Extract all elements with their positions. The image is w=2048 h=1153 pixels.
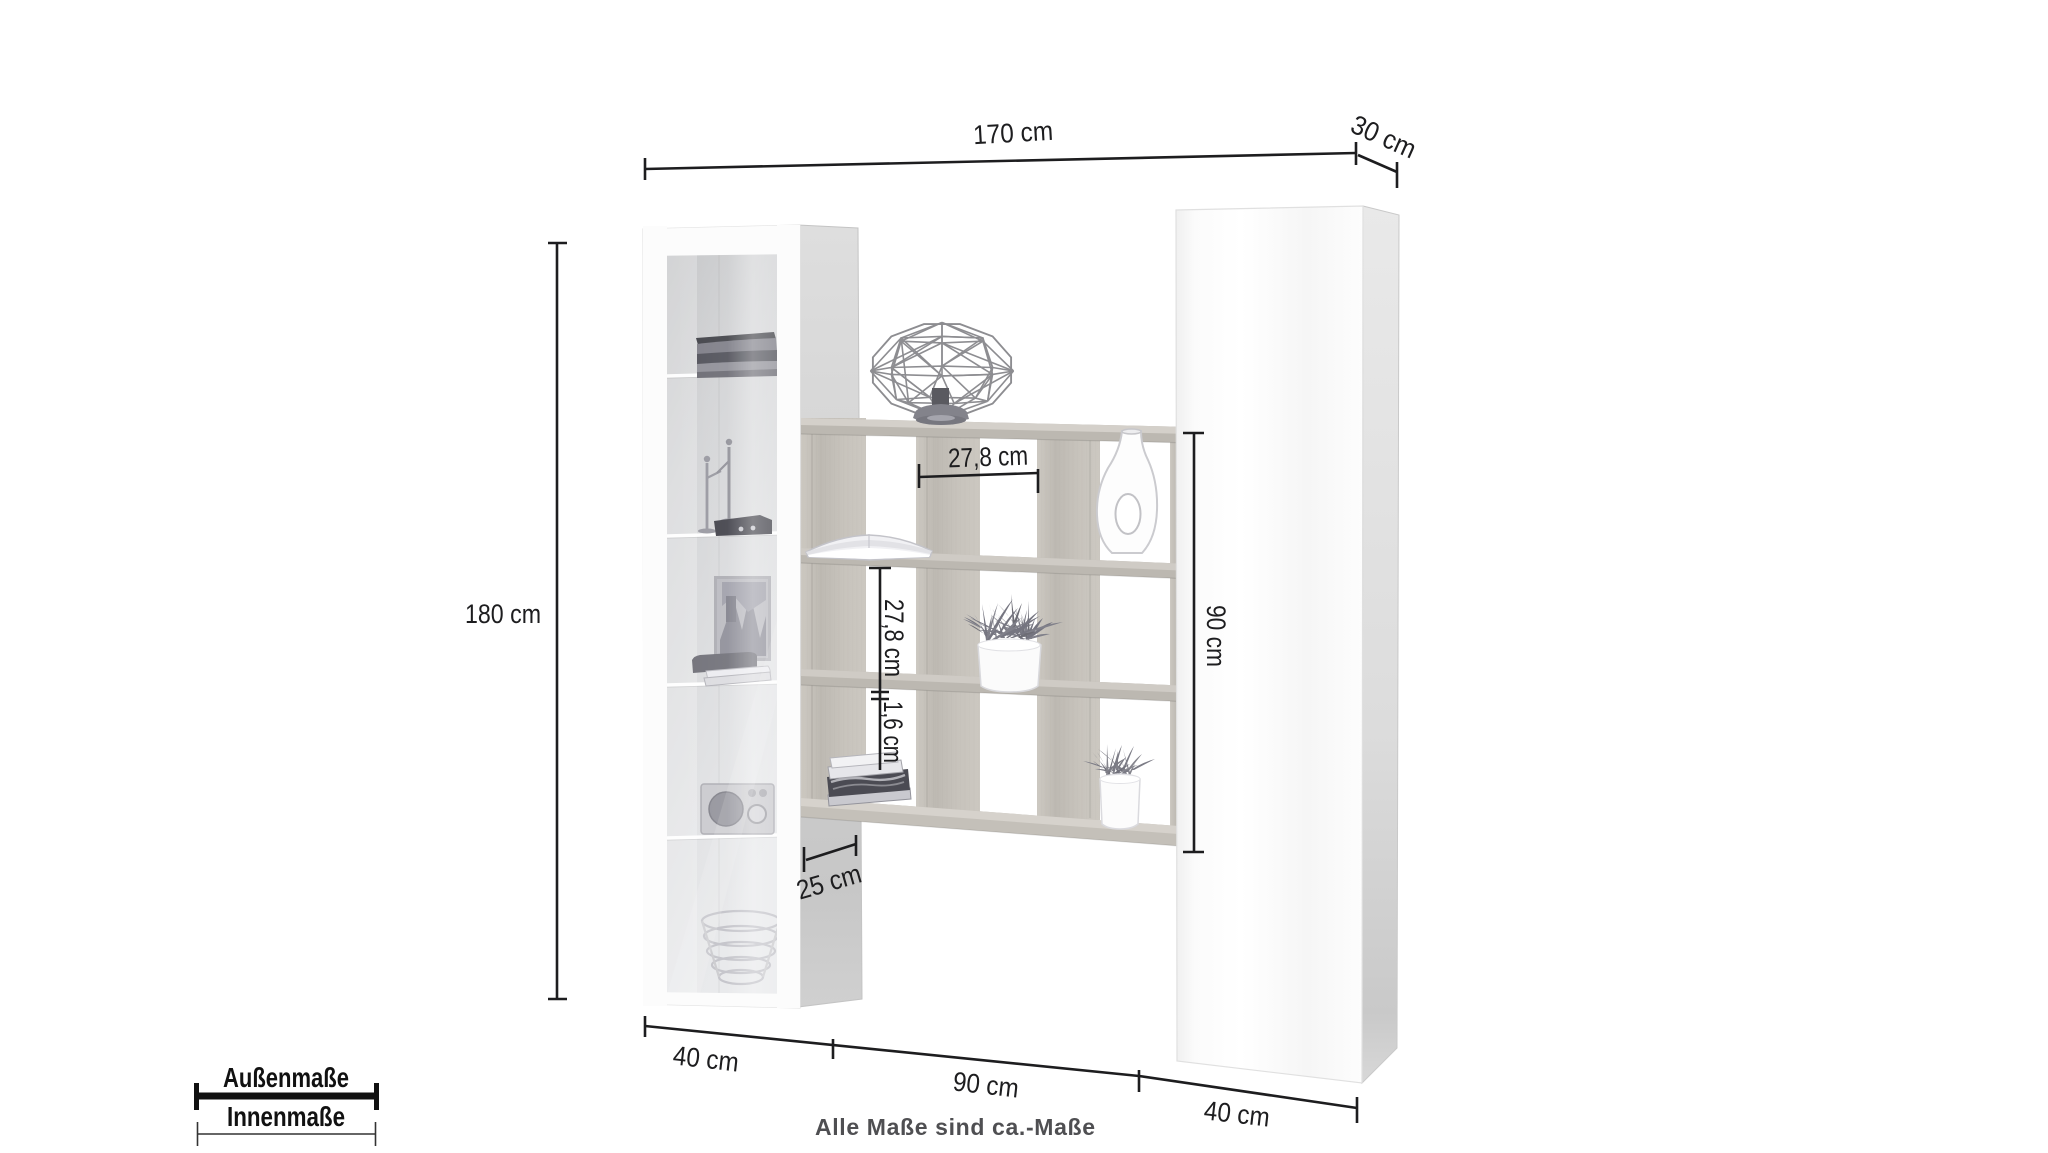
svg-text:170 cm: 170 cm <box>972 116 1054 150</box>
svg-text:90 cm: 90 cm <box>1201 605 1231 667</box>
svg-text:Innenmaße: Innenmaße <box>227 1101 345 1132</box>
svg-text:Alle Maße sind ca.-Maße: Alle Maße sind ca.-Maße <box>815 1114 1095 1140</box>
svg-text:Außenmaße: Außenmaße <box>223 1062 349 1093</box>
svg-text:27,8 cm: 27,8 cm <box>879 599 909 677</box>
svg-text:180 cm: 180 cm <box>465 599 541 629</box>
svg-text:27,8 cm: 27,8 cm <box>948 441 1029 474</box>
svg-text:1,6 cm: 1,6 cm <box>878 701 908 763</box>
